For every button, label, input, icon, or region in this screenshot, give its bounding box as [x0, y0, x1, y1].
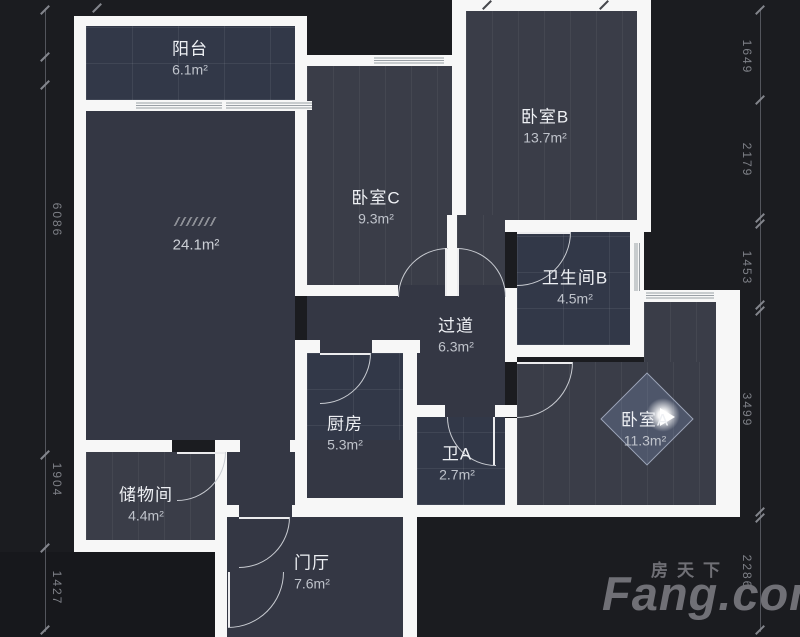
room-area: 13.7m² [521, 130, 569, 148]
dimension-label: 1649 [740, 40, 754, 75]
wall [452, 0, 651, 11]
wall [295, 340, 307, 510]
wall [403, 505, 417, 637]
room-area: 5.3m² [327, 437, 363, 455]
door-leaf-bathroom-a [493, 417, 495, 465]
window [633, 243, 641, 291]
wall [74, 440, 172, 452]
room-label-bedroom-a: 卧室A 11.3m² [621, 410, 669, 451]
room-area: 2.7m² [439, 467, 475, 485]
room-area: 24.1m² [173, 237, 220, 256]
room-name: 门厅 [294, 553, 330, 574]
dimension-label: 1904 [50, 463, 64, 498]
dimension-line-right [760, 8, 761, 632]
room-label-foyer: 门厅 7.6m² [294, 553, 330, 594]
door-leaf-bedroom-c [445, 248, 447, 296]
dimension-tick [92, 3, 102, 13]
room-area: 7.6m² [294, 576, 330, 594]
window [646, 291, 714, 300]
wall [290, 440, 307, 452]
wall [505, 220, 517, 232]
room-label-bedroom-c: 卧室C 9.3m² [351, 188, 400, 229]
room-area: 11.3m² [621, 433, 669, 451]
room-name: 厨房 [327, 414, 363, 435]
fang-watermark-logo: Fang.com [602, 566, 800, 621]
room-label-bedroom-b: 卧室B 13.7m² [521, 107, 569, 148]
wall [417, 505, 505, 517]
wall [716, 290, 740, 517]
wall [295, 340, 320, 353]
dimension-label: 3499 [740, 393, 754, 428]
wall [637, 0, 651, 232]
dimension-label: 2179 [740, 143, 754, 178]
wall [74, 16, 307, 26]
room-label-balcony: 阳台 6.1m² [172, 39, 208, 80]
wall [295, 285, 398, 296]
wall [505, 418, 517, 517]
room-name: 过道 [438, 316, 474, 337]
room-label-living: 24.1m² [173, 235, 220, 256]
dimension-label: 1427 [50, 571, 64, 606]
wall [295, 111, 307, 285]
room-label-storage: 储物间 4.4m² [119, 485, 173, 526]
wall [417, 405, 445, 417]
window [374, 56, 444, 65]
dimension-label: 6086 [50, 203, 64, 238]
room-name: 卫生间B [542, 268, 608, 289]
background-patch [0, 552, 215, 637]
room-name: 阳台 [172, 39, 208, 60]
wall [403, 353, 417, 517]
door-leaf-storage [177, 452, 225, 454]
dimension-label: 1453 [740, 251, 754, 286]
wall [505, 505, 740, 517]
room-area: 6.1m² [172, 62, 208, 80]
room-label-corridor: 过道 6.3m² [438, 316, 474, 357]
floor-bedroom-a-upper [644, 302, 716, 362]
door-leaf-bedroom-a [517, 362, 572, 364]
floor-living-room [86, 111, 295, 440]
wall [227, 505, 239, 517]
wall [295, 498, 417, 510]
room-area: 4.4m² [119, 508, 173, 526]
door-leaf-bedroom-b [457, 248, 459, 296]
door-leaf-kitchen [320, 353, 370, 355]
wall [505, 345, 644, 357]
room-label-bathroom-a: 卫A 2.7m² [439, 444, 475, 485]
wall [74, 540, 227, 552]
wall [452, 0, 466, 215]
door-leaf-bathroom-b [517, 232, 570, 234]
door-leaf-entry [228, 572, 230, 627]
room-label-kitchen: 厨房 5.3m² [327, 414, 363, 455]
room-name: 卧室A [621, 410, 669, 431]
room-area: 4.5m² [542, 291, 608, 309]
dimension-line-left [45, 8, 46, 632]
wall [74, 16, 86, 550]
wall [227, 440, 240, 452]
room-area: 9.3m² [351, 211, 400, 229]
room-name: 储物间 [119, 485, 173, 506]
room-area: 6.3m² [438, 339, 474, 357]
wall [495, 405, 517, 417]
door-leaf-foyer [239, 517, 289, 519]
window [226, 101, 312, 110]
room-name: 卧室C [351, 188, 400, 209]
floor-plan: 阳台 6.1m² 24.1m² 卧室C 9.3m² 卧室B 13.7m² 卫生间… [0, 0, 800, 637]
illegible-small-text [174, 217, 219, 226]
room-name: 卧室B [521, 107, 569, 128]
room-label-bathroom-b: 卫生间B 4.5m² [542, 268, 608, 309]
window [136, 101, 222, 110]
wall [447, 215, 457, 296]
room-name: 卫A [439, 444, 475, 465]
wall [372, 340, 420, 353]
